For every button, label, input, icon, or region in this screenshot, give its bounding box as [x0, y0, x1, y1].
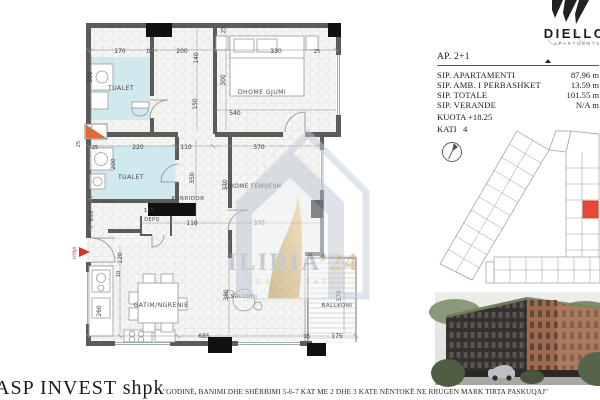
svg-text:370: 370 — [253, 144, 265, 151]
svg-text:140: 140 — [193, 52, 200, 64]
spec-label: SIP. VERANDE — [437, 100, 496, 110]
floor-plan-sheet: 170 10 200 330 25 25 140 150 300 300 540… — [0, 0, 600, 400]
room-label-tualet-2: TUALET — [117, 174, 144, 181]
entry-marker: HYRJA — [72, 247, 90, 260]
site-plan — [440, 131, 600, 283]
watermark-name: ILIRIA’24 — [227, 249, 358, 276]
shaft-symbol — [85, 124, 107, 139]
svg-text:110: 110 — [186, 220, 198, 227]
spec-label: SIP. APARTAMENTI — [437, 70, 515, 80]
spec-row: SIP. AMB. I PERBASHKET 13.59 m — [437, 80, 599, 90]
room-label-korridor: KORRIDOR — [172, 196, 205, 202]
spec-value: N/A m — [576, 100, 599, 110]
svg-text:685: 685 — [198, 333, 210, 340]
spec-row: SIP. VERANDE N/A m — [437, 100, 599, 110]
spec-row: SIP. APARTAMENTI 87.96 m — [437, 70, 599, 80]
apartment-spec-panel: AP. 2+1 SIP. APARTAMENTI 87.96 m SIP. AM… — [437, 52, 599, 134]
kati-line: KATI 4 — [437, 124, 599, 134]
svg-text:25: 25 — [76, 141, 82, 147]
svg-text:120: 120 — [117, 252, 124, 264]
svg-text:150: 150 — [192, 98, 199, 110]
svg-text:170: 170 — [114, 48, 126, 55]
highlighted-unit — [583, 201, 598, 218]
developer-name: ASP INVEST shpk — [0, 377, 164, 400]
spec-value: 101.55 m — [567, 90, 599, 100]
svg-text:540: 540 — [229, 110, 241, 117]
spec-label: SIP. AMB. I PERBASHKET — [437, 80, 541, 90]
spec-row: SIP. TOTALE 101.55 m — [437, 90, 599, 100]
north-arrow-icon — [443, 143, 462, 162]
svg-text:175: 175 — [331, 333, 343, 340]
svg-text:260: 260 — [96, 305, 103, 317]
svg-text:220: 220 — [132, 144, 144, 151]
building-photo — [429, 292, 600, 387]
kuota-line: KUOTA +18.25 — [437, 112, 599, 122]
svg-text:10: 10 — [146, 49, 152, 55]
svg-text:25: 25 — [221, 27, 227, 33]
site-wing-vertical — [566, 131, 599, 263]
spec-value: 87.96 m — [571, 70, 599, 80]
svg-text:115: 115 — [144, 208, 155, 214]
bed — [216, 36, 318, 96]
svg-text:200: 200 — [110, 158, 117, 170]
svg-text:330: 330 — [270, 48, 282, 55]
svg-text:350: 350 — [189, 172, 196, 184]
svg-text:200: 200 — [176, 48, 188, 55]
svg-text:300: 300 — [87, 71, 94, 83]
brand-tagline: APARTMENTS 2 — [536, 41, 600, 46]
room-label-depo: DEPO — [144, 217, 160, 223]
watermark-tagline: REAL ESTATE — [247, 277, 339, 286]
apartment-code: AP. 2+1 — [437, 52, 599, 62]
entry-label: HYRJA — [72, 247, 77, 260]
room-label-ballkoni: BALLKONI — [322, 303, 353, 309]
room-label-gatim-ngrenie: GATIM/NGRENIE — [134, 302, 189, 309]
rule-marker-icon — [545, 59, 551, 63]
svg-text:25: 25 — [92, 145, 98, 151]
svg-text:910: 910 — [88, 210, 95, 222]
room-label-tualet-1: TUALET — [107, 85, 134, 92]
project-caption: "GODINË, BANIMI DHE SHËRBIMI 5-6-7 KAT M… — [163, 387, 600, 396]
room-label-dhome-gjumi: DHOME GJUMI — [238, 89, 286, 96]
svg-text:110: 110 — [180, 144, 192, 151]
svg-text:25: 25 — [304, 334, 310, 340]
spec-label: SIP. TOTALE — [437, 90, 487, 100]
svg-text:300: 300 — [220, 74, 227, 86]
svg-text:10: 10 — [116, 271, 122, 277]
svg-text:25: 25 — [314, 49, 320, 55]
brand-name: DIELLON — [536, 27, 600, 40]
floor-plan: 170 10 200 330 25 25 140 150 300 300 540… — [72, 23, 366, 356]
divider — [437, 65, 599, 66]
svg-text:380: 380 — [223, 289, 230, 301]
spec-value: 13.59 m — [571, 80, 599, 90]
brand-block: DIELLON APARTMENTS 2 — [536, 0, 600, 46]
